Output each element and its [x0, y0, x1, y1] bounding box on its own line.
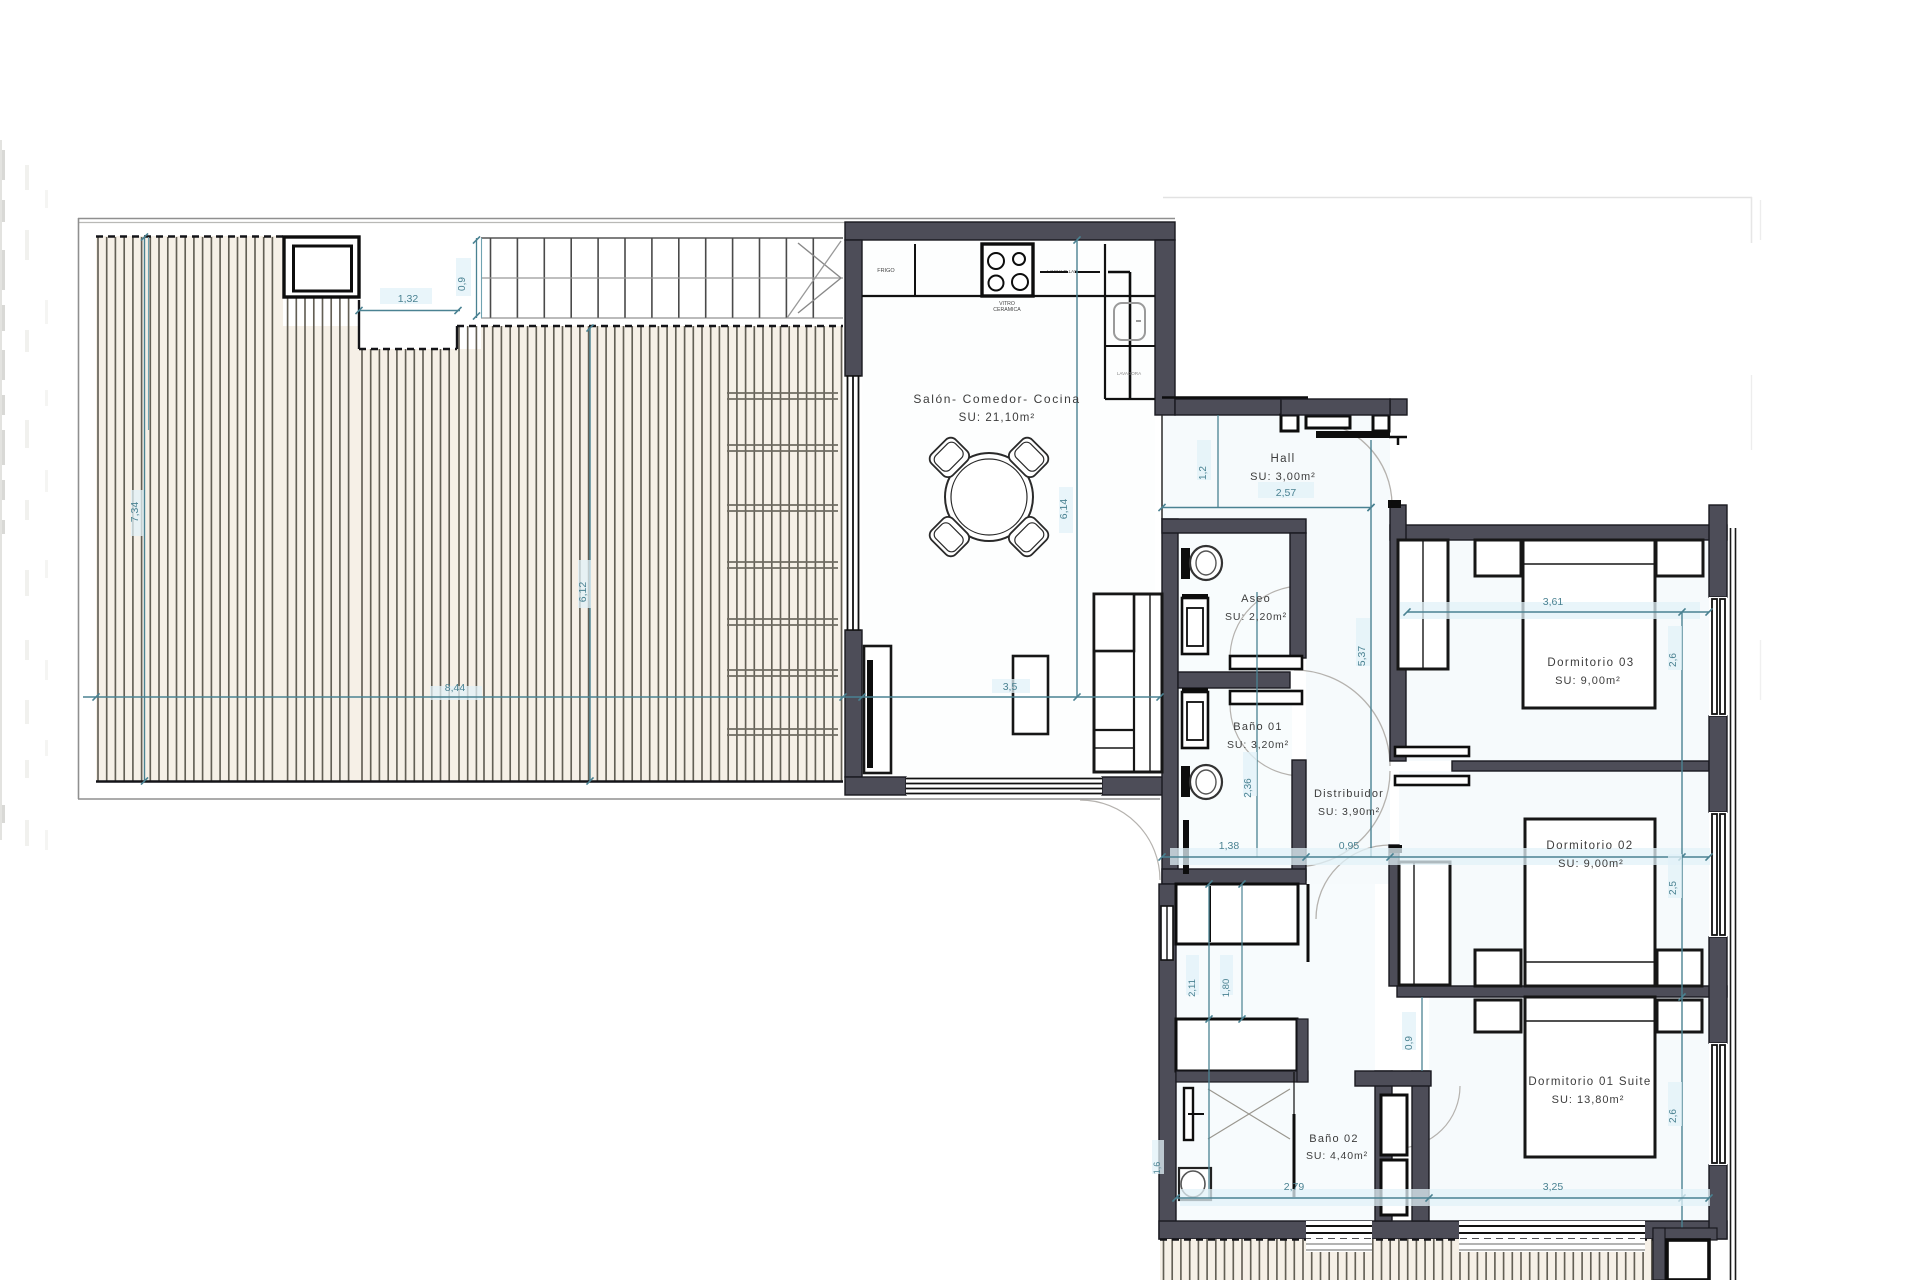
- svg-text:6,12: 6,12: [577, 582, 589, 603]
- svg-text:0,9: 0,9: [457, 277, 468, 291]
- svg-text:2,36: 2,36: [1243, 778, 1254, 798]
- svg-text:Salón- Comedor- Cocina: Salón- Comedor- Cocina: [913, 392, 1080, 406]
- svg-text:2,79: 2,79: [1284, 1181, 1305, 1193]
- svg-text:SU: 9,00m²: SU: 9,00m²: [1558, 858, 1624, 870]
- svg-text:1,38: 1,38: [1219, 840, 1240, 852]
- svg-text:1,6: 1,6: [1152, 1162, 1162, 1175]
- svg-text:Hall: Hall: [1270, 453, 1295, 465]
- svg-text:Distribuidor: Distribuidor: [1314, 788, 1384, 800]
- svg-text:SU: 3,90m²: SU: 3,90m²: [1318, 806, 1380, 818]
- svg-text:Aseo: Aseo: [1241, 593, 1271, 605]
- svg-text:1,32: 1,32: [398, 293, 419, 305]
- svg-text:3,25: 3,25: [1543, 1181, 1564, 1193]
- svg-text:Baño 02: Baño 02: [1309, 1133, 1358, 1145]
- svg-text:3,61: 3,61: [1543, 596, 1564, 608]
- svg-text:2,6: 2,6: [1668, 1109, 1679, 1123]
- svg-text:SU: 21,10m²: SU: 21,10m²: [959, 412, 1036, 424]
- svg-text:LAVADORA: LAVADORA: [1117, 371, 1142, 376]
- svg-text:7,34: 7,34: [129, 502, 141, 523]
- svg-text:2,5: 2,5: [1668, 881, 1679, 895]
- svg-text:5,37: 5,37: [1356, 646, 1368, 667]
- svg-text:SU: 13,80m²: SU: 13,80m²: [1552, 1094, 1625, 1106]
- svg-text:SU: 4,40m²: SU: 4,40m²: [1306, 1150, 1368, 1162]
- svg-text:2,57: 2,57: [1276, 487, 1297, 499]
- svg-text:8,44: 8,44: [445, 682, 466, 694]
- svg-text:2,11: 2,11: [1187, 979, 1198, 997]
- svg-text:2,6: 2,6: [1668, 653, 1679, 667]
- svg-text:1,80: 1,80: [1221, 979, 1232, 998]
- svg-text:SU: 3,00m²: SU: 3,00m²: [1250, 471, 1316, 483]
- svg-text:1,2: 1,2: [1198, 466, 1209, 480]
- svg-text:SU: 9,00m²: SU: 9,00m²: [1555, 675, 1621, 687]
- svg-text:Baño 01: Baño 01: [1233, 721, 1282, 733]
- svg-text:FRIGO: FRIGO: [877, 268, 895, 274]
- svg-text:CERAMICA: CERAMICA: [993, 307, 1021, 313]
- svg-text:0,95: 0,95: [1339, 840, 1360, 852]
- svg-text:Dormitorio 01 Suite: Dormitorio 01 Suite: [1528, 1076, 1651, 1088]
- svg-text:3,5: 3,5: [1003, 681, 1018, 693]
- svg-text:SU: 2,20m²: SU: 2,20m²: [1225, 611, 1287, 623]
- svg-text:0,9: 0,9: [1404, 1036, 1415, 1050]
- svg-text:SU: 3,20m²: SU: 3,20m²: [1227, 739, 1289, 751]
- svg-text:6,14: 6,14: [1058, 499, 1070, 520]
- svg-text:Dormitorio 02: Dormitorio 02: [1546, 840, 1633, 852]
- svg-text:Dormitorio 03: Dormitorio 03: [1547, 657, 1634, 669]
